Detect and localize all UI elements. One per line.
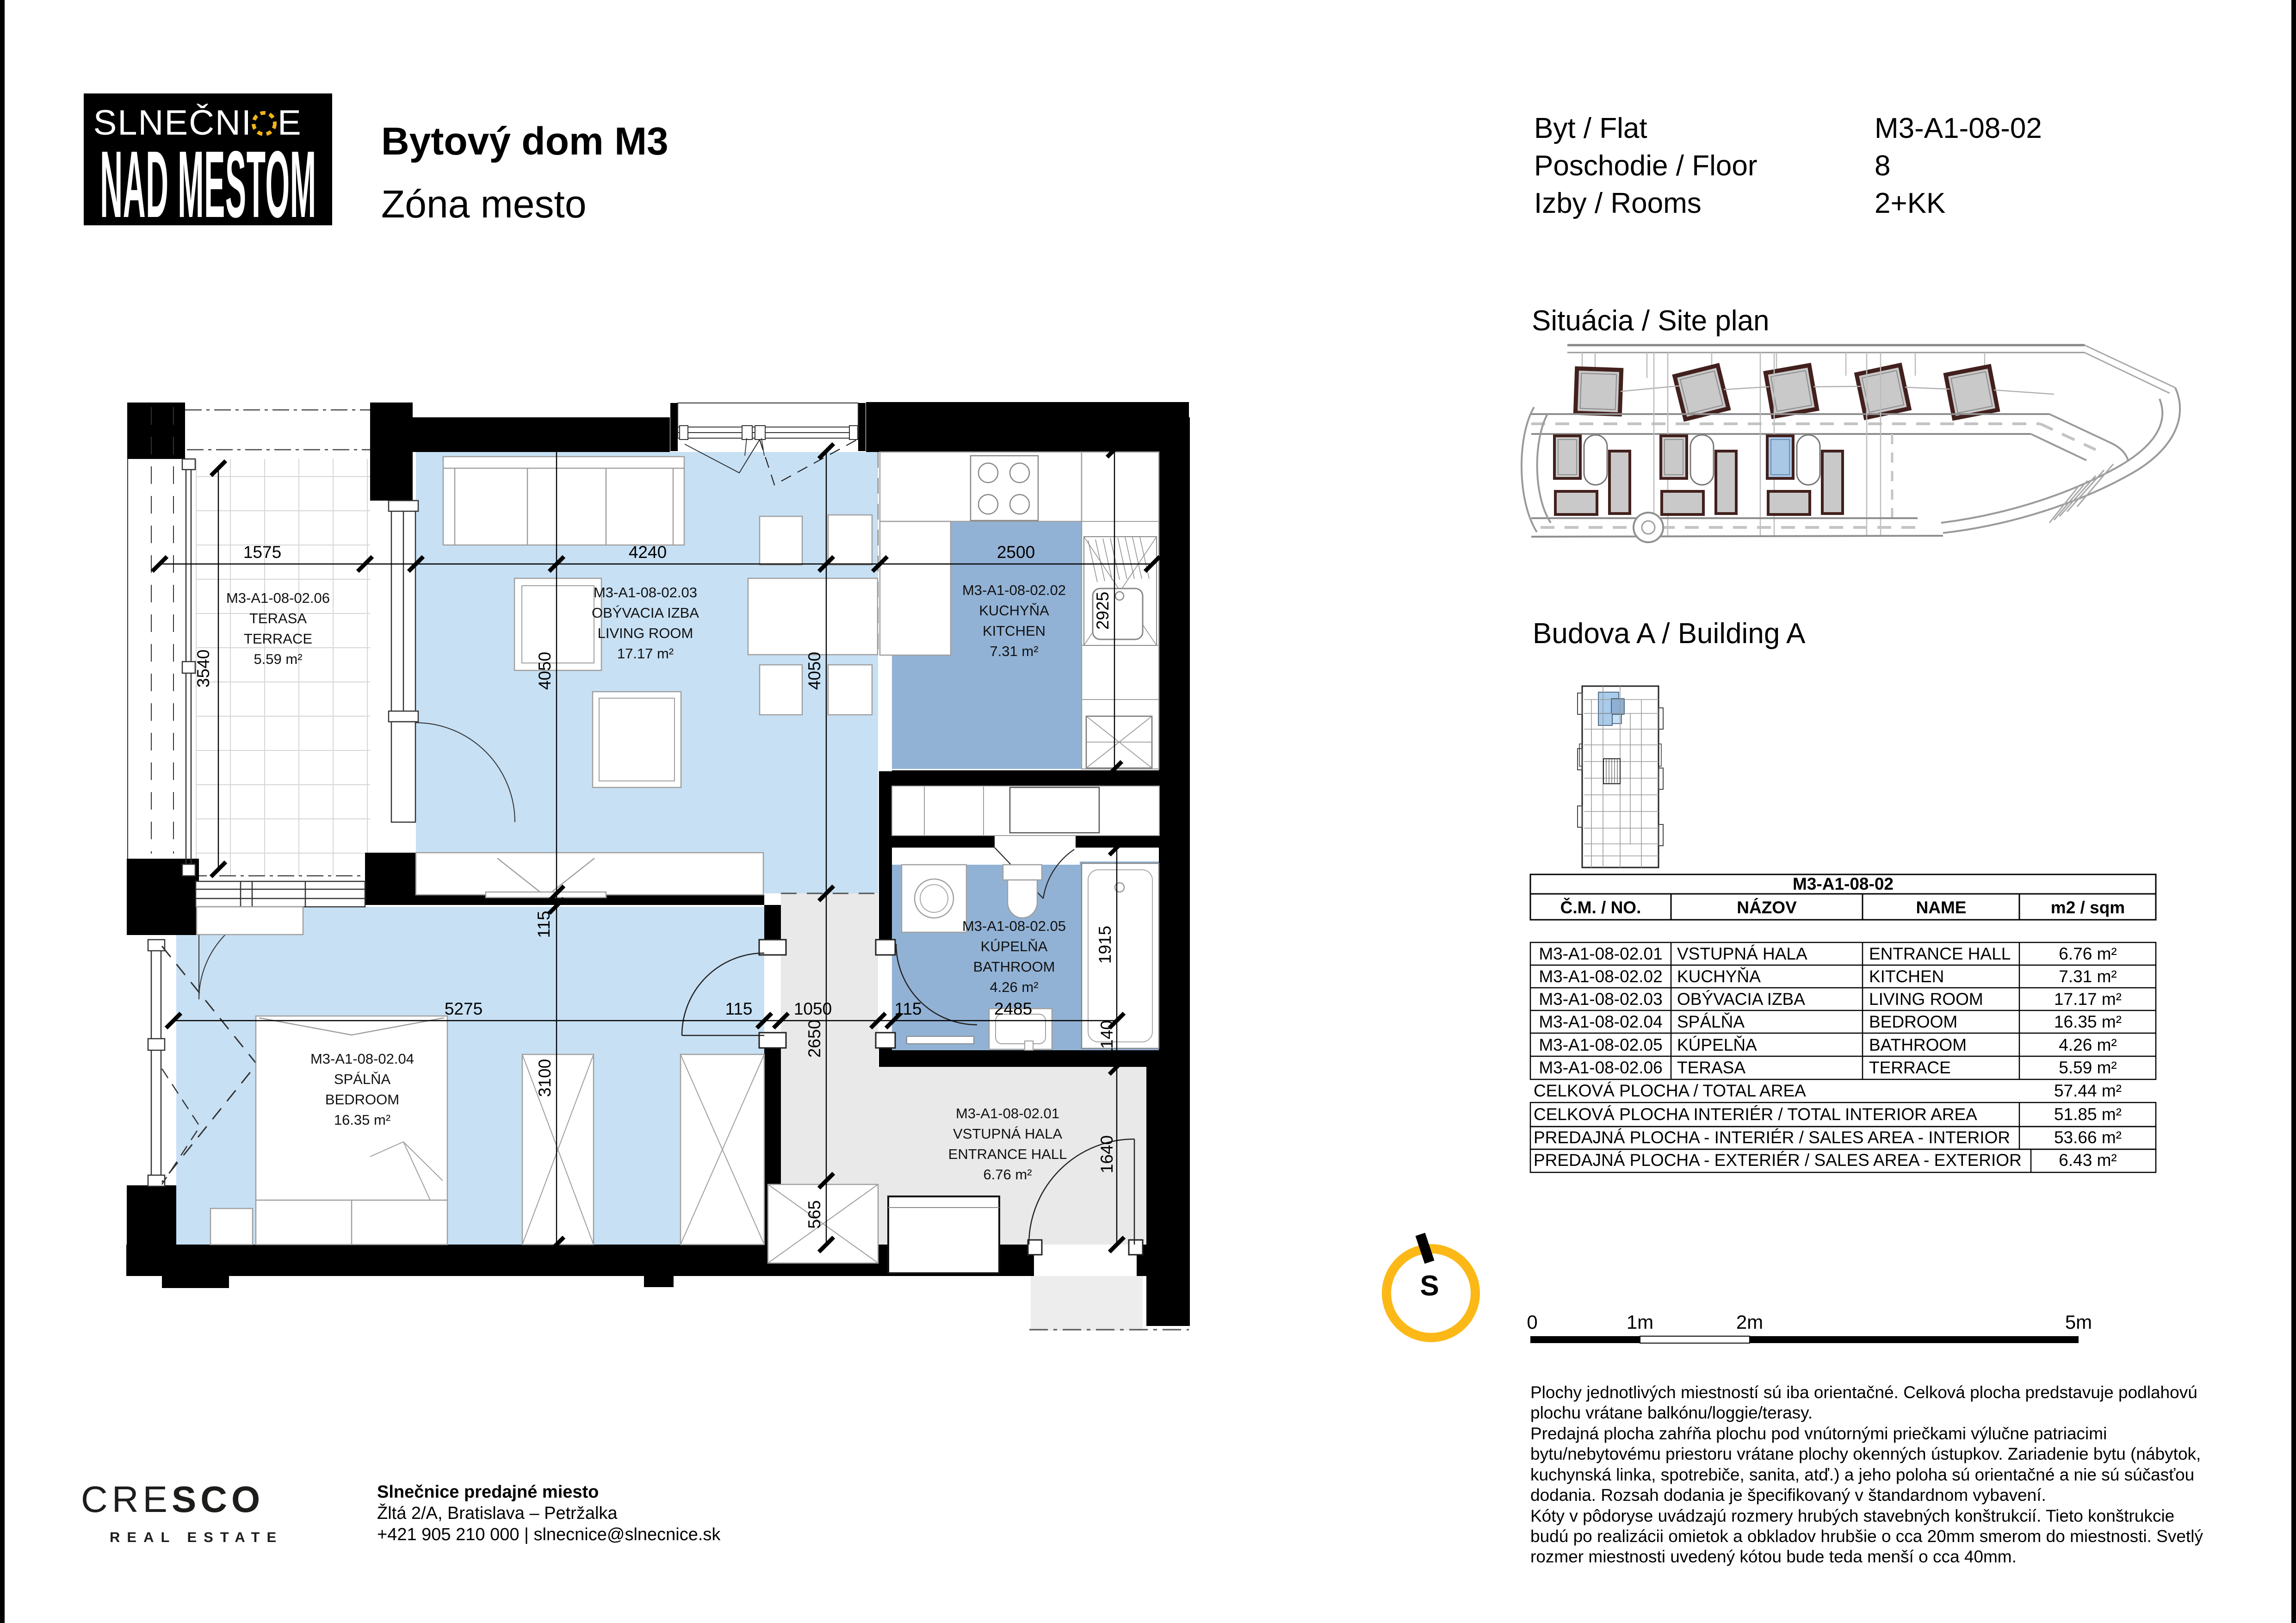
svg-text:M3-A1-08-02.03: M3-A1-08-02.03 [594, 584, 697, 601]
svg-text:KITCHEN: KITCHEN [1869, 967, 1944, 986]
svg-text:LIVING ROOM: LIVING ROOM [598, 625, 693, 641]
svg-text:TERRACE: TERRACE [244, 631, 312, 647]
svg-text:Zóna mesto: Zóna mesto [381, 182, 587, 226]
svg-text:M3-A1-08-02.05: M3-A1-08-02.05 [962, 918, 1066, 934]
svg-text:565: 565 [805, 1200, 824, 1229]
svg-text:1m: 1m [1627, 1311, 1653, 1333]
svg-text:7.31 m²: 7.31 m² [2059, 967, 2117, 986]
svg-text:Plochy jednotlivých miestností: Plochy jednotlivých miestností sú iba or… [1530, 1383, 2197, 1402]
svg-text:1140: 1140 [1097, 1020, 1116, 1057]
svg-text:Kóty v pôdoryse uvádzajú rozme: Kóty v pôdoryse uvádzajú rozmery hrubých… [1530, 1506, 2174, 1525]
svg-text:16.35 m²: 16.35 m² [334, 1112, 390, 1128]
svg-text:REAL ESTATE: REAL ESTATE [110, 1529, 283, 1545]
svg-text:Situácia / Site plan: Situácia / Site plan [1532, 305, 1770, 337]
svg-text:BEDROOM: BEDROOM [1869, 1012, 1957, 1031]
svg-text:5m: 5m [2065, 1311, 2092, 1333]
svg-text:6.76 m²: 6.76 m² [2059, 944, 2117, 963]
svg-text:8: 8 [1875, 150, 1890, 182]
svg-text:M3-A1-08-02.06: M3-A1-08-02.06 [1539, 1058, 1662, 1077]
svg-text:1915: 1915 [1095, 926, 1114, 964]
svg-text:3100: 3100 [535, 1059, 554, 1097]
svg-text:M3-A1-08-02: M3-A1-08-02 [1875, 112, 2042, 144]
svg-text:M3-A1-08-02.03: M3-A1-08-02.03 [1539, 990, 1662, 1009]
svg-text:6.43 m²: 6.43 m² [2059, 1151, 2117, 1170]
svg-text:PREDAJNÁ PLOCHA - EXTERIÉR / S: PREDAJNÁ PLOCHA - EXTERIÉR / SALES AREA … [1534, 1151, 2022, 1170]
svg-text:1575: 1575 [243, 543, 281, 562]
svg-text:KUCHYŇA: KUCHYŇA [1677, 967, 1761, 986]
svg-text:4050: 4050 [805, 652, 824, 690]
svg-text:Byt / Flat: Byt / Flat [1534, 112, 1647, 144]
svg-text:16.35 m²: 16.35 m² [2054, 1012, 2122, 1031]
svg-text:BATHROOM: BATHROOM [973, 959, 1055, 975]
svg-text:M3-A1-08-02.02: M3-A1-08-02.02 [962, 582, 1066, 598]
svg-text:bytu/nebytovému priestoru vrát: bytu/nebytovému priestoru vrátane plochy… [1530, 1444, 2201, 1463]
svg-text:+421 905 210 000 | slnecnice@s: +421 905 210 000 | slnecnice@slnecnice.s… [377, 1525, 721, 1544]
svg-text:0: 0 [1527, 1311, 1537, 1333]
svg-text:115: 115 [534, 911, 553, 938]
svg-text:M3-A1-08-02.04: M3-A1-08-02.04 [310, 1051, 414, 1067]
svg-text:CELKOVÁ PLOCHA / TOTAL AREA: CELKOVÁ PLOCHA / TOTAL AREA [1534, 1081, 1806, 1100]
svg-text:SPÁLŇA: SPÁLŇA [334, 1071, 391, 1087]
svg-text:CRESCO: CRESCO [81, 1479, 264, 1520]
svg-text:KITCHEN: KITCHEN [983, 623, 1046, 639]
svg-text:6.76 m²: 6.76 m² [983, 1166, 1032, 1183]
svg-text:OBÝVACIA IZBA: OBÝVACIA IZBA [592, 605, 699, 621]
svg-text:M3-A1-08-02: M3-A1-08-02 [1793, 874, 1894, 893]
svg-text:KÚPELŇA: KÚPELŇA [1677, 1035, 1757, 1054]
svg-text:m2 / sqm: m2 / sqm [2051, 898, 2125, 917]
svg-text:Budova A / Building A: Budova A / Building A [1533, 618, 1806, 650]
svg-text:53.66 m²: 53.66 m² [2054, 1128, 2122, 1147]
svg-text:4240: 4240 [629, 543, 667, 562]
svg-text:KÚPELŇA: KÚPELŇA [981, 938, 1048, 954]
svg-text:115: 115 [725, 999, 753, 1018]
svg-text:Slnečnice predajné miesto: Slnečnice predajné miesto [377, 1482, 599, 1502]
svg-text:kuchynská linka, spotrebiče, s: kuchynská linka, spotrebiče, sanita, atď… [1530, 1465, 2194, 1484]
svg-text:dodania. Rozsah dodania je špe: dodania. Rozsah dodania je špecifikovaný… [1530, 1486, 2046, 1505]
svg-text:M3-A1-08-02.04: M3-A1-08-02.04 [1539, 1012, 1662, 1031]
svg-text:BEDROOM: BEDROOM [325, 1091, 399, 1108]
svg-text:2650: 2650 [805, 1020, 824, 1058]
svg-text:M3-A1-08-02.02: M3-A1-08-02.02 [1539, 967, 1662, 986]
svg-text:S: S [1420, 1270, 1439, 1302]
svg-text:ENTRANCE HALL: ENTRANCE HALL [1869, 944, 2011, 963]
svg-text:2485: 2485 [994, 999, 1032, 1018]
svg-text:PREDAJNÁ PLOCHA - INTERIÉR / S: PREDAJNÁ PLOCHA - INTERIÉR / SALES AREA … [1534, 1128, 2010, 1147]
svg-text:5.59 m²: 5.59 m² [2059, 1058, 2117, 1077]
svg-text:NAME: NAME [1916, 898, 1967, 917]
svg-text:3540: 3540 [194, 650, 213, 688]
svg-text:115: 115 [895, 999, 922, 1018]
svg-text:TERRACE: TERRACE [1869, 1058, 1951, 1077]
svg-text:plochu vrátane balkónu/loggie/: plochu vrátane balkónu/loggie/terasy. [1530, 1403, 1813, 1422]
svg-text:Žltá 2/A, Bratislava – Petržal: Žltá 2/A, Bratislava – Petržalka [377, 1503, 618, 1523]
svg-text:CELKOVÁ PLOCHA INTERIÉR / TOTA: CELKOVÁ PLOCHA INTERIÉR / TOTAL INTERIOR… [1534, 1105, 1977, 1124]
svg-text:SPÁLŇA: SPÁLŇA [1677, 1012, 1745, 1031]
svg-text:Predajná plocha zahŕňa plochu: Predajná plocha zahŕňa plochu pod vnútor… [1530, 1424, 2107, 1443]
svg-text:NÁZOV: NÁZOV [1737, 898, 1797, 917]
svg-text:2925: 2925 [1093, 592, 1112, 630]
svg-text:VSTUPNÁ HALA: VSTUPNÁ HALA [953, 1126, 1062, 1142]
svg-text:Bytový dom M3: Bytový dom M3 [381, 119, 668, 163]
svg-text:budú po realizácii omietok a o: budú po realizácii omietok a obkladov hr… [1530, 1527, 2203, 1546]
svg-text:4.26 m²: 4.26 m² [2059, 1035, 2117, 1054]
svg-text:2+KK: 2+KK [1875, 187, 1945, 219]
svg-text:5275: 5275 [445, 999, 483, 1018]
svg-text:ENTRANCE HALL: ENTRANCE HALL [948, 1146, 1067, 1162]
svg-text:VSTUPNÁ HALA: VSTUPNÁ HALA [1677, 944, 1807, 963]
svg-text:2500: 2500 [997, 543, 1035, 562]
svg-text:NAD MESTOM: NAD MESTOM [100, 132, 316, 237]
svg-text:7.31 m²: 7.31 m² [990, 643, 1038, 659]
svg-text:M3-A1-08-02.01: M3-A1-08-02.01 [956, 1105, 1059, 1121]
svg-text:4.26 m²: 4.26 m² [990, 979, 1038, 995]
svg-text:4050: 4050 [535, 652, 554, 690]
svg-text:Izby / Rooms: Izby / Rooms [1534, 187, 1702, 219]
svg-text:5.59 m²: 5.59 m² [254, 651, 302, 667]
svg-text:KUCHYŇA: KUCHYŇA [979, 602, 1049, 619]
svg-text:OBÝVACIA IZBA: OBÝVACIA IZBA [1677, 990, 1805, 1009]
svg-text:Č.M. / NO.: Č.M. / NO. [1560, 898, 1641, 917]
svg-text:17.17 m²: 17.17 m² [617, 645, 674, 662]
svg-text:M3-A1-08-02.05: M3-A1-08-02.05 [1539, 1035, 1662, 1054]
svg-text:1050: 1050 [794, 999, 832, 1018]
svg-text:TERASA: TERASA [249, 610, 307, 626]
svg-text:1640: 1640 [1097, 1135, 1116, 1173]
svg-text:rozmer miestnosti uvedený kóto: rozmer miestnosti uvedený kótou bude ted… [1530, 1547, 2017, 1566]
svg-text:57.44 m²: 57.44 m² [2054, 1081, 2122, 1100]
svg-text:TERASA: TERASA [1677, 1058, 1745, 1077]
svg-text:Poschodie / Floor: Poschodie / Floor [1534, 150, 1757, 182]
svg-text:M3-A1-08-02.01: M3-A1-08-02.01 [1539, 944, 1662, 963]
svg-text:M3-A1-08-02.06: M3-A1-08-02.06 [226, 590, 330, 606]
svg-text:51.85 m²: 51.85 m² [2054, 1105, 2122, 1124]
svg-text:17.17 m²: 17.17 m² [2054, 990, 2122, 1009]
svg-text:LIVING ROOM: LIVING ROOM [1869, 990, 1983, 1009]
svg-text:2m: 2m [1736, 1311, 1763, 1333]
svg-text:BATHROOM: BATHROOM [1869, 1035, 1967, 1054]
